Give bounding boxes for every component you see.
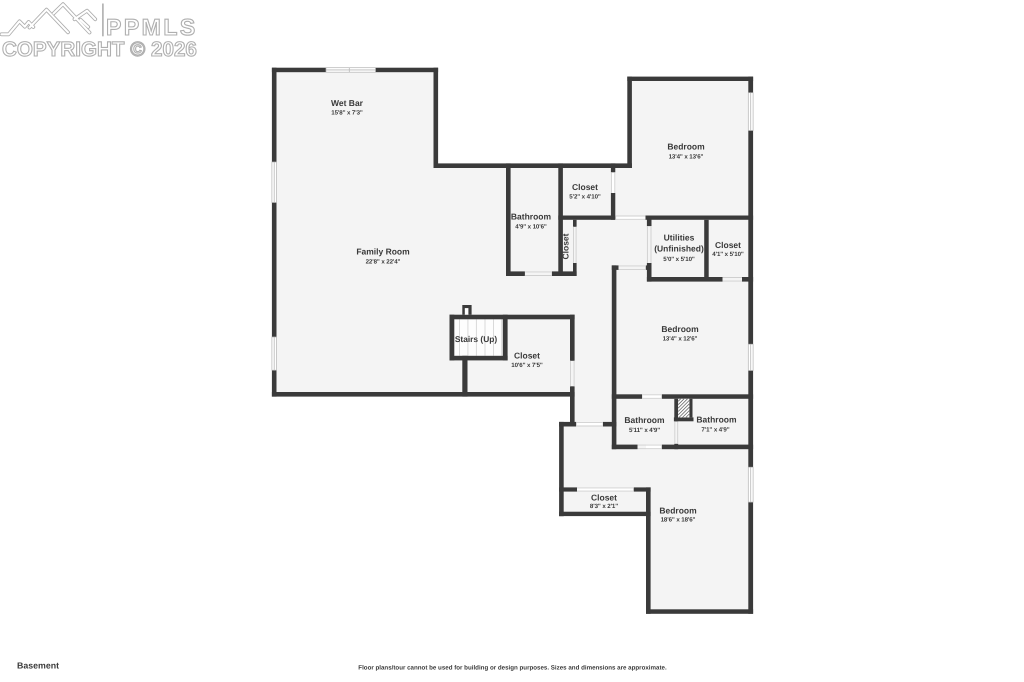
svg-text:Closet: Closet [715, 240, 741, 250]
svg-text:5'0" x 5'10": 5'0" x 5'10" [663, 256, 695, 263]
svg-text:PPMLS: PPMLS [106, 14, 198, 40]
svg-text:Bathroom: Bathroom [511, 211, 552, 221]
svg-text:Bedroom: Bedroom [667, 141, 705, 151]
svg-text:10'6" x 7'5": 10'6" x 7'5" [511, 362, 543, 369]
svg-text:Bedroom: Bedroom [661, 324, 699, 334]
svg-text:Closet: Closet [591, 492, 617, 502]
svg-text:Floor plans/tour cannot be use: Floor plans/tour cannot be used for buil… [358, 665, 667, 672]
svg-text:15'8" x 7'3": 15'8" x 7'3" [331, 109, 363, 116]
svg-text:Bathroom: Bathroom [696, 415, 737, 425]
svg-text:Stairs (Up): Stairs (Up) [455, 334, 498, 344]
svg-text:Utilities: Utilities [664, 232, 695, 242]
svg-text:Bedroom: Bedroom [659, 506, 697, 516]
svg-text:5'2" x 4'10": 5'2" x 4'10" [569, 193, 601, 200]
svg-text:Bathroom: Bathroom [624, 415, 665, 425]
svg-text:Closet: Closet [561, 233, 571, 259]
svg-text:COPYRIGHT © 2026: COPYRIGHT © 2026 [2, 38, 197, 61]
svg-text:(Unfinished): (Unfinished) [654, 243, 704, 253]
svg-text:18'6" x 18'6": 18'6" x 18'6" [661, 516, 696, 523]
svg-text:Wet Bar: Wet Bar [331, 98, 364, 108]
svg-text:5'11" x 4'9": 5'11" x 4'9" [629, 427, 660, 434]
svg-text:Basement: Basement [17, 661, 59, 671]
svg-text:Closet: Closet [572, 182, 598, 192]
svg-text:13'4" x 13'6": 13'4" x 13'6" [669, 153, 704, 160]
svg-text:Closet: Closet [514, 350, 540, 360]
svg-text:4'9" x 10'6": 4'9" x 10'6" [515, 223, 547, 230]
svg-text:22'8" x 22'4": 22'8" x 22'4" [366, 258, 401, 265]
svg-text:13'4" x 12'6": 13'4" x 12'6" [663, 335, 698, 342]
svg-text:Family Room: Family Room [356, 246, 410, 256]
svg-text:7'1" x 4'9": 7'1" x 4'9" [701, 426, 729, 433]
svg-text:8'3" x 2'1": 8'3" x 2'1" [590, 503, 618, 510]
svg-text:4'1" x 5'10": 4'1" x 5'10" [712, 251, 744, 258]
